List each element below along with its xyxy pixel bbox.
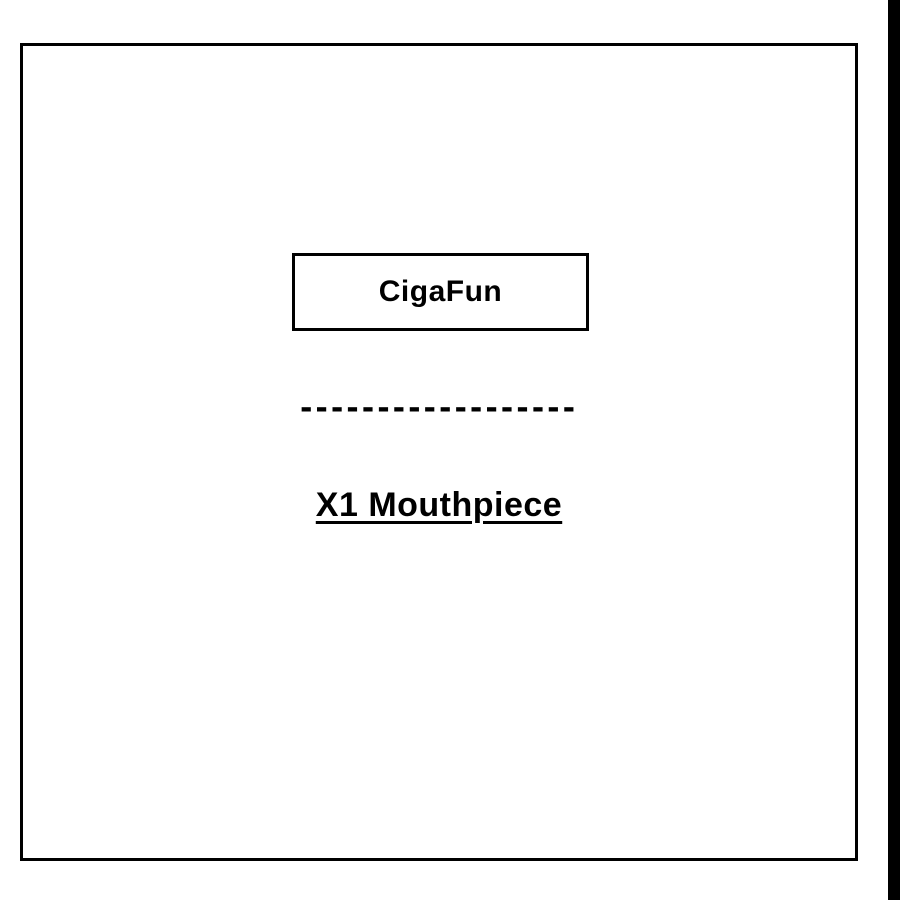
brand-box: CigaFun xyxy=(292,253,589,331)
dashed-divider: ------------------ xyxy=(20,392,858,426)
right-edge-bar xyxy=(888,0,900,900)
product-name-label: X1 Mouthpiece xyxy=(20,486,858,525)
brand-label: CigaFun xyxy=(379,275,503,309)
page-frame xyxy=(20,43,858,861)
